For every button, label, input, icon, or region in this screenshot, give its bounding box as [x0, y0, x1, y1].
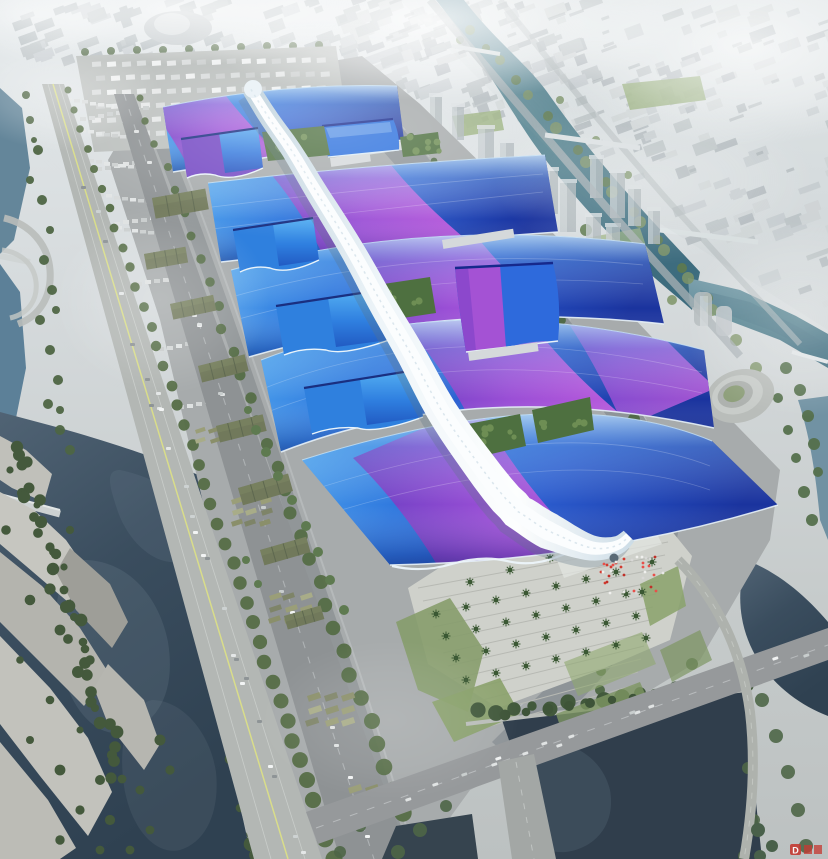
svg-text:D: D	[792, 846, 799, 856]
